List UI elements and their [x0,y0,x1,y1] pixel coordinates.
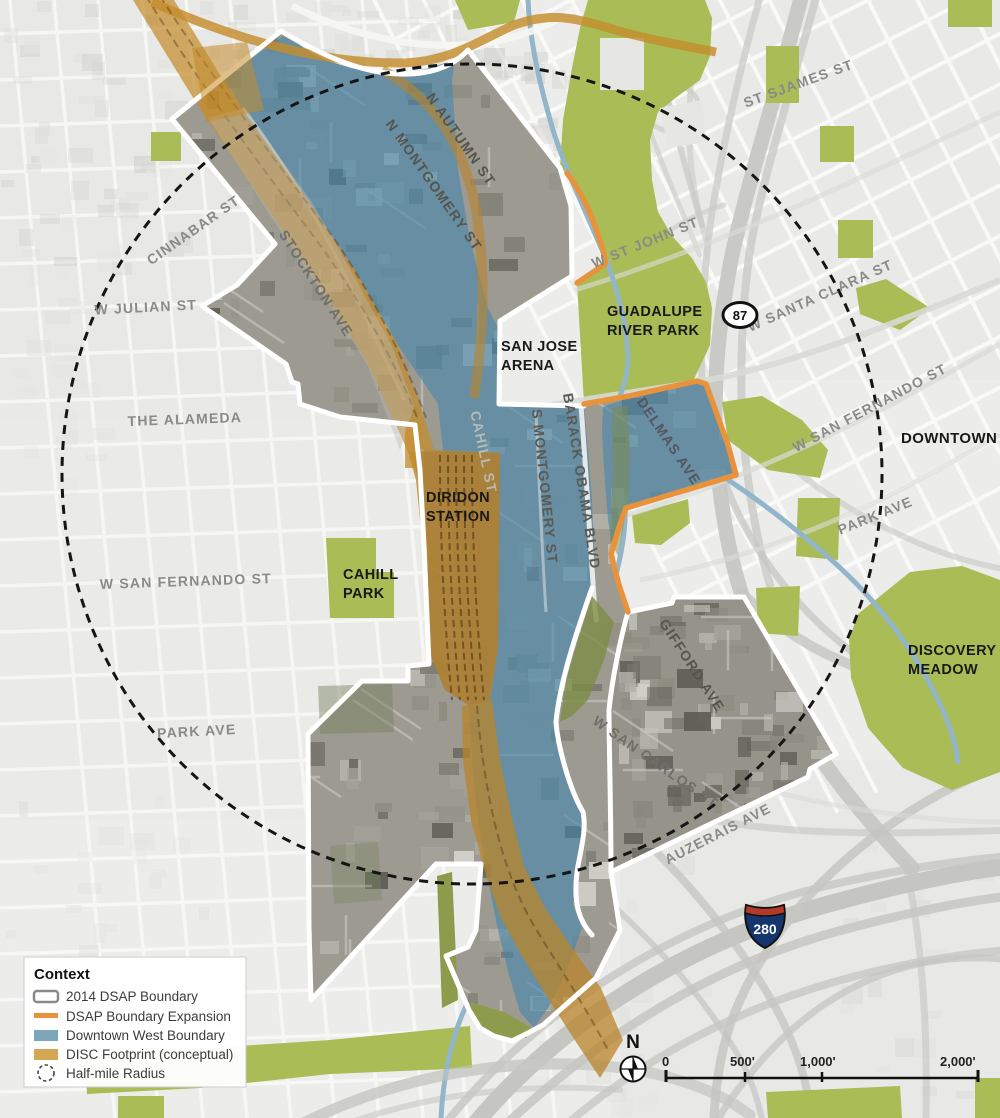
svg-text:PARK: PARK [343,586,385,602]
svg-text:Context: Context [34,966,90,983]
svg-text:RIVER PARK: RIVER PARK [607,323,699,339]
svg-text:DISCOVERY: DISCOVERY [908,643,996,659]
svg-text:CAHILL: CAHILL [343,567,399,583]
svg-text:2,000': 2,000' [940,1054,976,1069]
svg-text:GUADALUPE: GUADALUPE [607,304,702,320]
svg-text:0: 0 [662,1054,669,1069]
svg-text:280: 280 [753,921,777,937]
svg-text:1,000': 1,000' [800,1054,836,1069]
svg-text:MEADOW: MEADOW [908,662,978,678]
svg-text:DISC Footprint (conceptual): DISC Footprint (conceptual) [66,1047,233,1062]
svg-text:2014 DSAP Boundary: 2014 DSAP Boundary [66,989,198,1004]
svg-text:500': 500' [730,1054,755,1069]
svg-text:Half-mile Radius: Half-mile Radius [66,1066,165,1081]
svg-text:DIRIDON: DIRIDON [426,490,490,506]
svg-text:87: 87 [733,308,747,323]
svg-text:DOWNTOWN: DOWNTOWN [901,430,997,447]
svg-text:SAN JOSE: SAN JOSE [501,339,578,355]
svg-text:ARENA: ARENA [501,358,555,374]
svg-text:N: N [626,1032,640,1053]
svg-text:Downtown West Boundary: Downtown West Boundary [66,1028,225,1043]
svg-text:STATION: STATION [426,509,490,525]
svg-text:DSAP Boundary Expansion: DSAP Boundary Expansion [66,1009,231,1024]
